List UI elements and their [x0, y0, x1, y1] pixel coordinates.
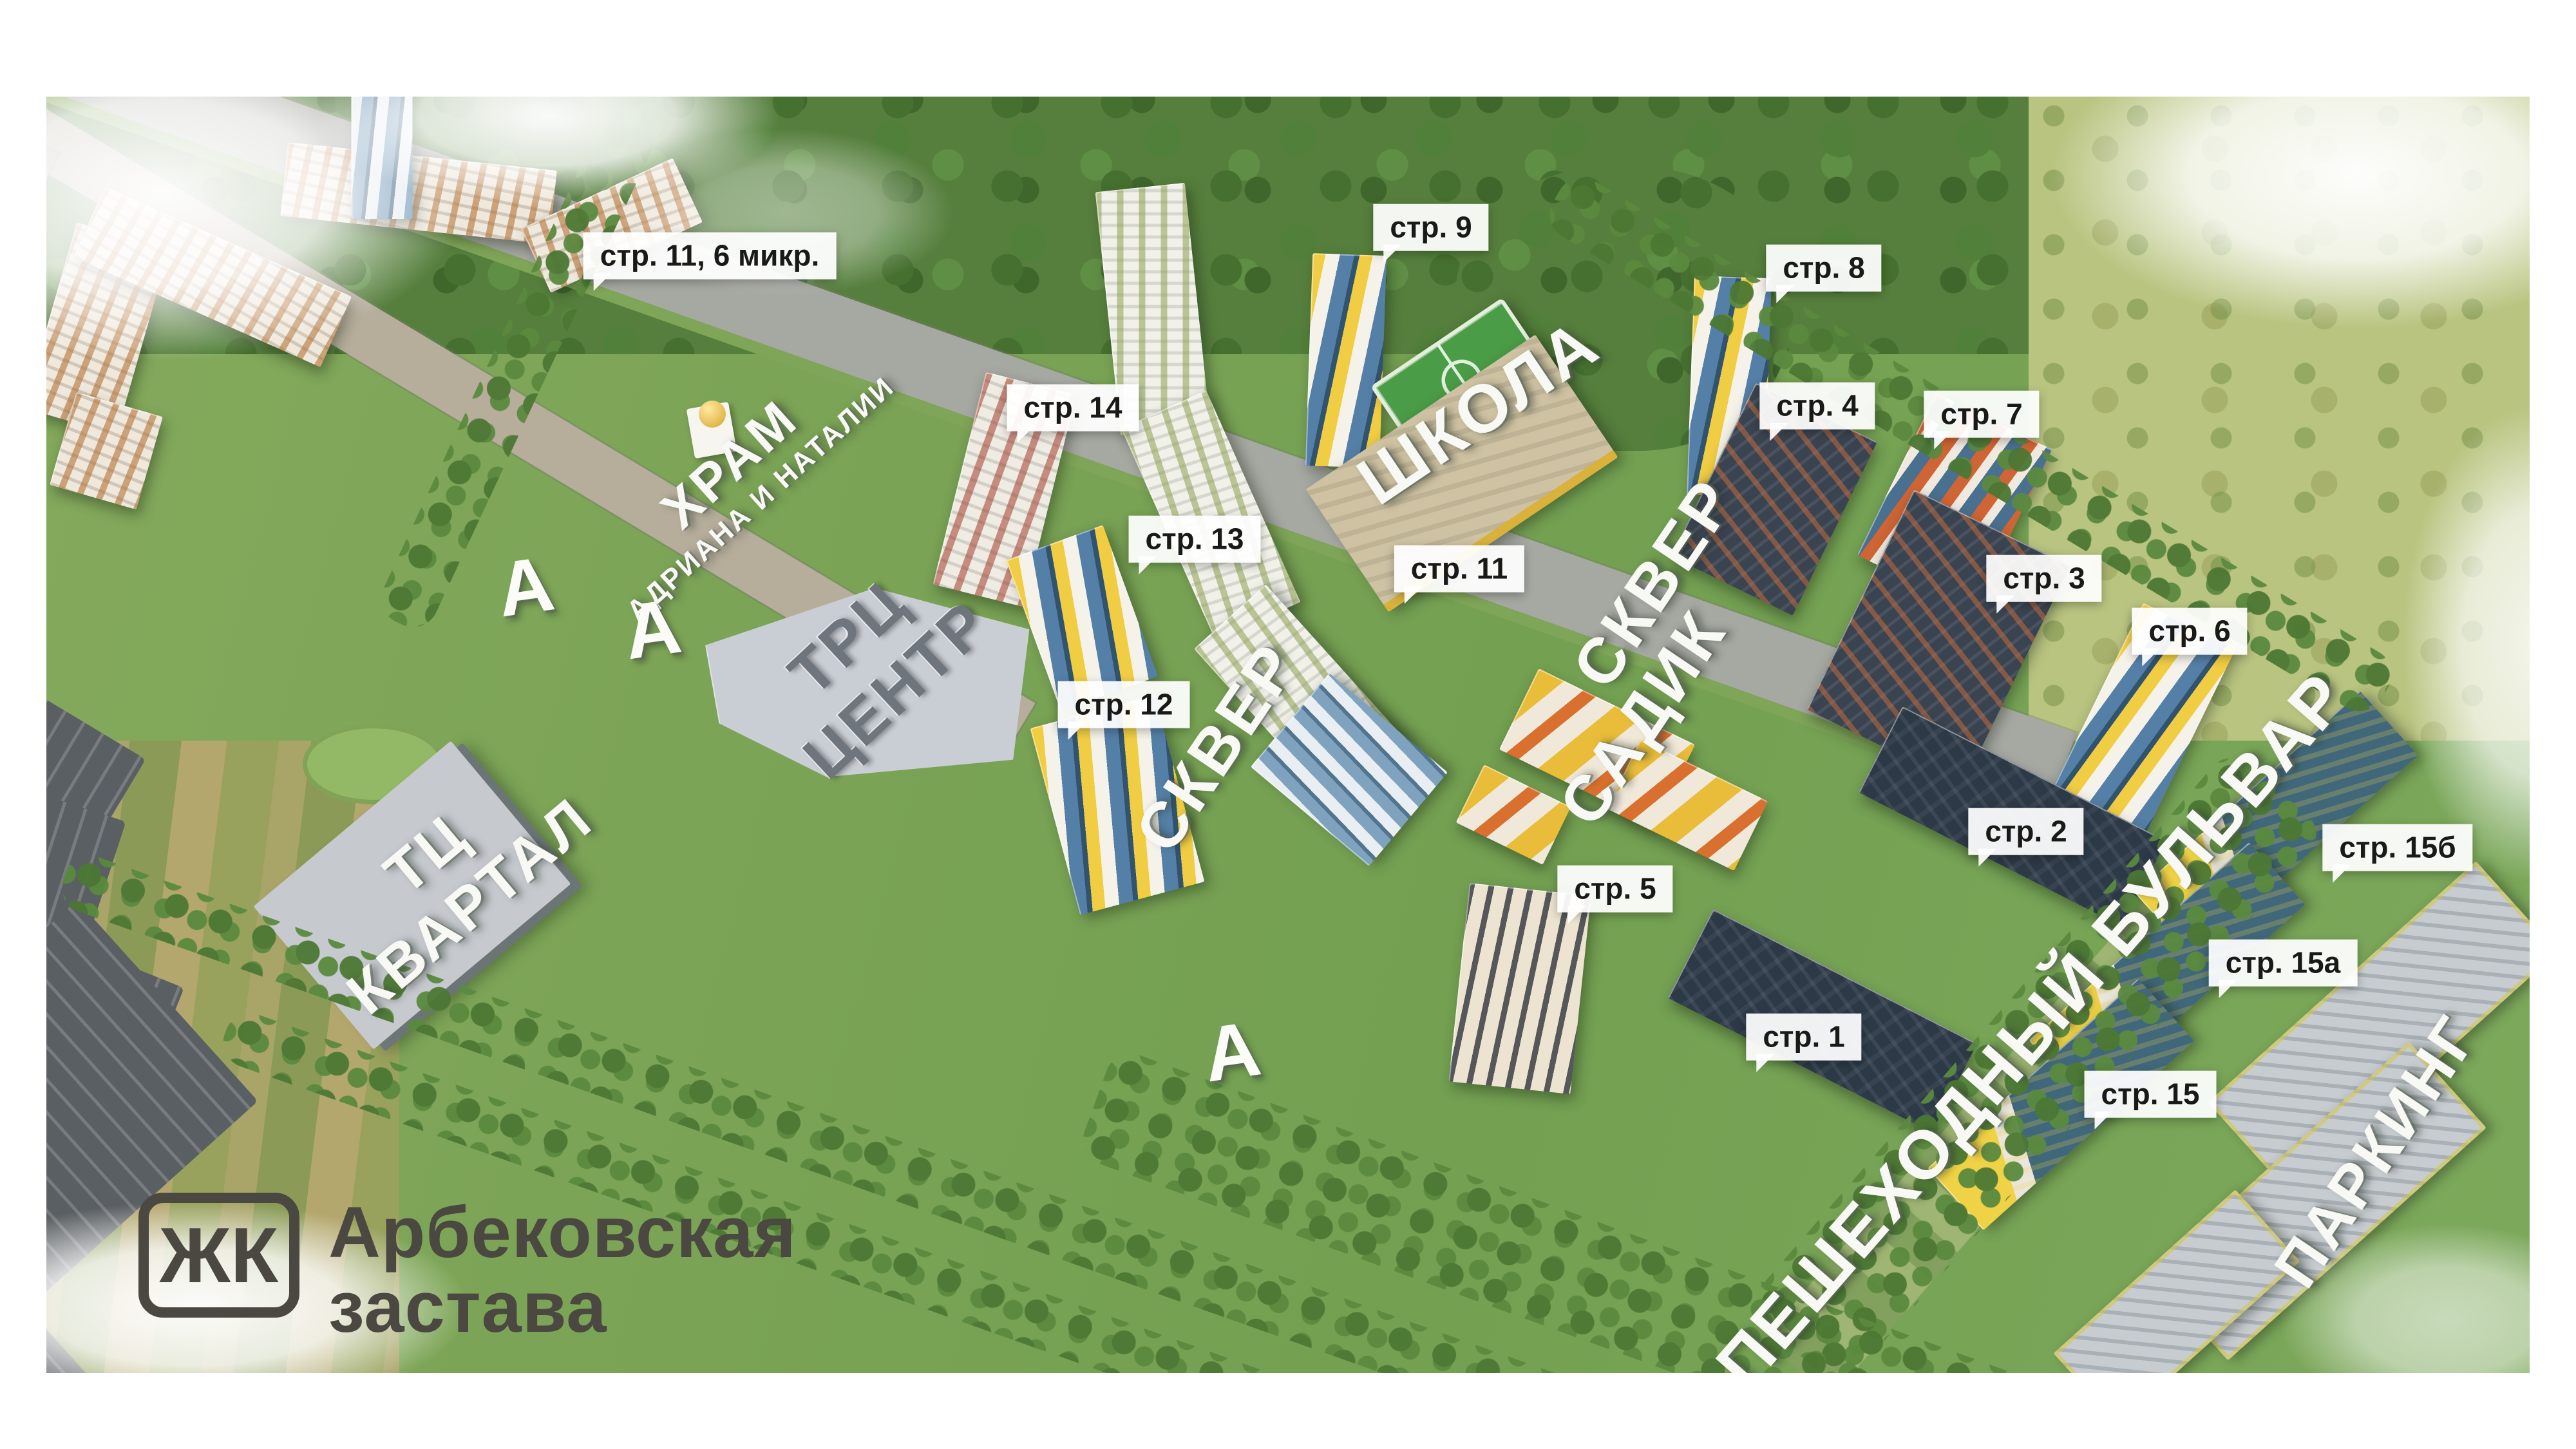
label-str-7[interactable]: стр. 7 [1924, 391, 2039, 438]
arch-monument-a2: А [618, 582, 686, 677]
label-str-5[interactable]: стр. 5 [1557, 866, 1672, 913]
label-str-6[interactable]: стр. 6 [2132, 608, 2247, 655]
logo-mark: ЖК [138, 1193, 299, 1318]
label-str-9[interactable]: стр. 9 [1373, 204, 1488, 251]
margin-right [2530, 0, 2576, 1449]
label-str-15b[interactable]: стр. 15б [2322, 824, 2472, 871]
label-str-3[interactable]: стр. 3 [1986, 555, 2101, 602]
label-str-2[interactable]: стр. 2 [1968, 808, 2083, 855]
temple-dome-icon [699, 401, 726, 428]
logo-title-line1: Арбековская [328, 1195, 797, 1270]
label-str-11[interactable]: стр. 11 [1394, 545, 1524, 592]
margin-top [0, 0, 2576, 97]
arch-monument-a3: А [1198, 1004, 1265, 1100]
aerial-scene: ХРАМ АДРИАНА И НАТАЛИИ ШКОЛА СКВЕР САДИК… [0, 0, 2576, 1449]
label-str-4[interactable]: стр. 4 [1759, 383, 1875, 430]
logo-title-line2: застава [328, 1270, 797, 1345]
margin-bottom [0, 1373, 2576, 1449]
logo-title: Арбековская застава [328, 1195, 797, 1345]
label-str-11-6mkr[interactable]: стр. 11, 6 микр. [583, 232, 837, 279]
margin-left [0, 0, 46, 1449]
label-str-15a[interactable]: стр. 15а [2209, 940, 2358, 987]
arch-monument-a1: А [491, 539, 559, 635]
label-str-14[interactable]: стр. 14 [1007, 384, 1139, 431]
label-str-13[interactable]: стр. 13 [1129, 516, 1261, 563]
label-str-8[interactable]: стр. 8 [1766, 245, 1881, 292]
label-str-12[interactable]: стр. 12 [1058, 681, 1190, 728]
label-str-15[interactable]: стр. 15 [2085, 1071, 2217, 1118]
kindergarten-block-3 [1456, 764, 1571, 865]
masterplan-page: ХРАМ АДРИАНА И НАТАЛИИ ШКОЛА СКВЕР САДИК… [0, 0, 2576, 1449]
label-str-1[interactable]: стр. 1 [1746, 1014, 1861, 1061]
